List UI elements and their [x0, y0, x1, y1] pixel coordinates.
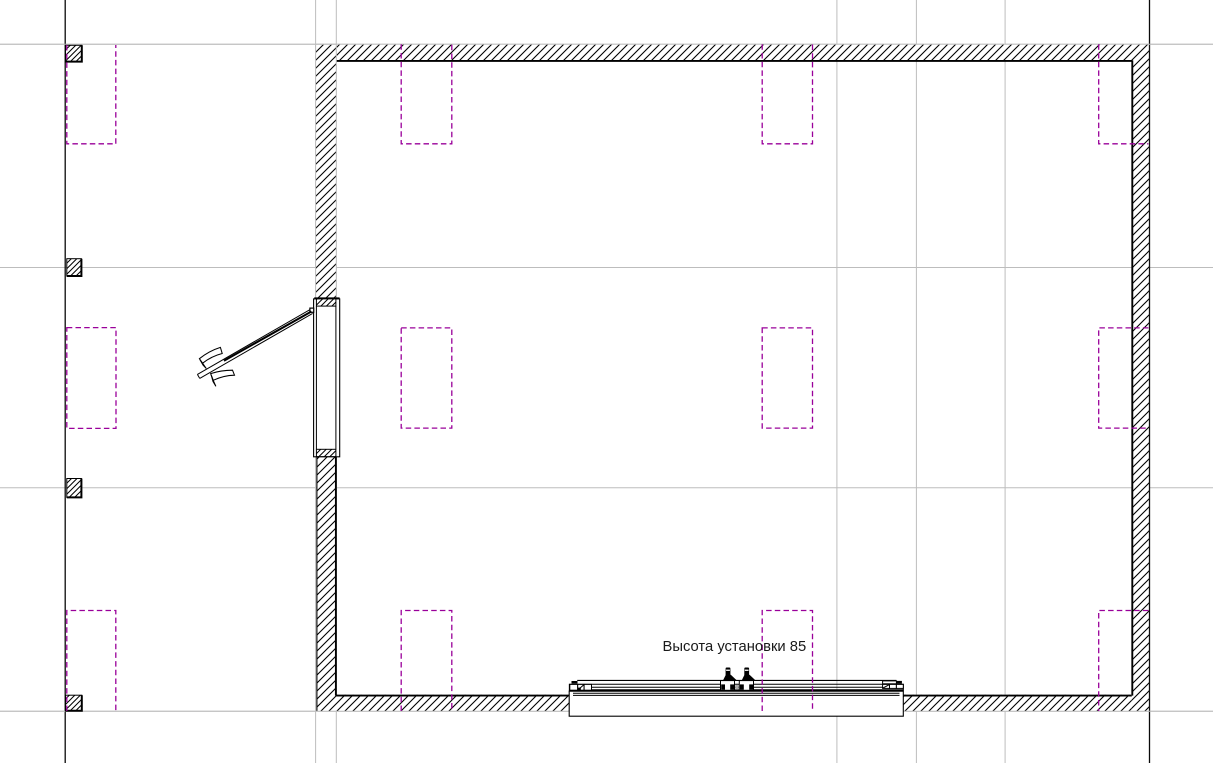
- svg-text:Высота установки 85: Высота установки 85: [663, 638, 807, 655]
